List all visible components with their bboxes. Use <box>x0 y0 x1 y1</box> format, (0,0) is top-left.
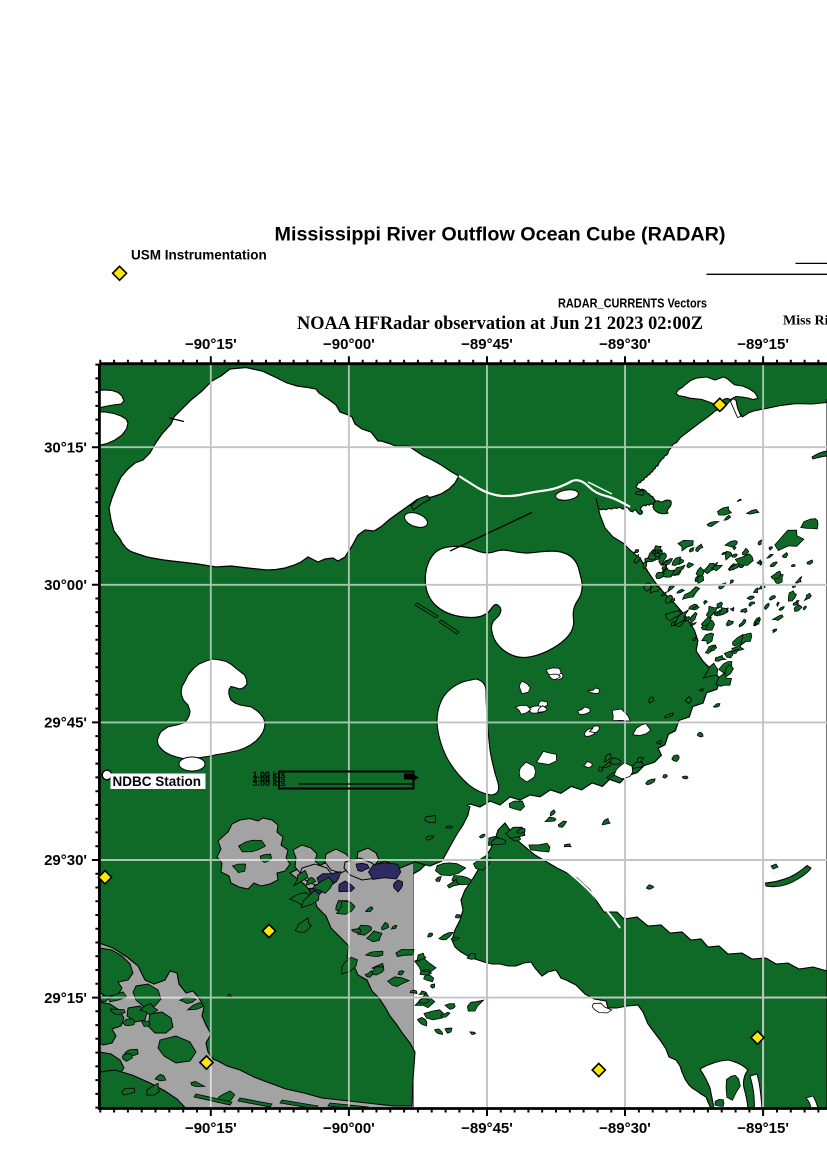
svg-text:NDBC Station: NDBC Station <box>113 774 202 789</box>
svg-text:−89°30': −89°30' <box>599 336 651 353</box>
svg-text:−90°00': −90°00' <box>323 336 375 353</box>
svg-text:Mississippi River Outflow Ocea: Mississippi River Outflow Ocean Cube (RA… <box>275 224 726 246</box>
svg-text:−90°15': −90°15' <box>185 1120 237 1137</box>
svg-text:29°30': 29°30' <box>44 852 87 869</box>
svg-text:−89°15': −89°15' <box>737 1120 789 1137</box>
svg-text:USM Instrumentation: USM Instrumentation <box>131 248 267 263</box>
svg-text:30°15': 30°15' <box>44 439 87 456</box>
svg-text:−89°45': −89°45' <box>461 1120 513 1137</box>
svg-text:−89°30': −89°30' <box>599 1120 651 1137</box>
svg-text:−90°15': −90°15' <box>185 336 237 353</box>
svg-text:−90°00': −90°00' <box>323 1120 375 1137</box>
svg-text:RADAR_CURRENTS Vectors: RADAR_CURRENTS Vectors <box>558 297 707 311</box>
svg-text:30°00': 30°00' <box>44 577 87 594</box>
svg-text:NOAA HFRadar observation at Ju: NOAA HFRadar observation at Jun 21 2023 … <box>297 314 703 334</box>
svg-text:−89°15': −89°15' <box>737 336 789 353</box>
svg-text:Miss Riv: Miss Riv <box>783 314 827 329</box>
svg-text:−89°45': −89°45' <box>461 336 513 353</box>
svg-text:29°15': 29°15' <box>44 990 87 1007</box>
svg-text:29°45': 29°45' <box>44 715 87 732</box>
svg-text:3.00 kts: 3.00 kts <box>253 778 286 788</box>
